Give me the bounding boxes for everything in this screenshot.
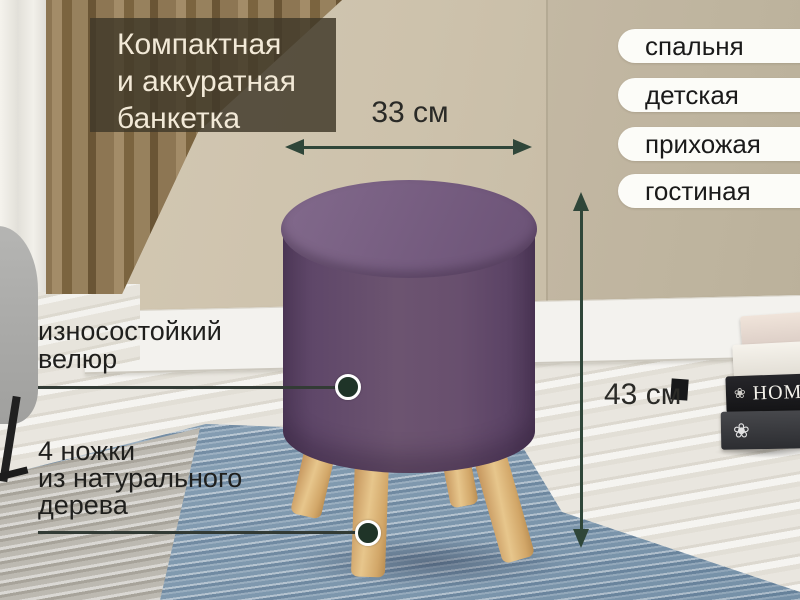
callout-legs-line-3: дерева [38,492,242,519]
callout-velour-text: износостойкий велюр [38,317,222,373]
room-tag-label: детская [645,80,739,111]
room-tag-label: спальня [645,31,744,62]
title-line-1: Компактная [117,26,336,63]
arrow-left-icon [285,139,304,155]
room-tag-livingroom: гостиная [618,174,800,208]
callout-velour-pointer-line [38,386,338,389]
pouf-leg-front-left [351,458,389,577]
width-dimension-line [302,146,514,149]
arrow-down-icon [573,529,589,548]
arrow-up-icon [573,192,589,211]
callout-legs-marker-icon [355,520,381,546]
callout-legs-pointer-line [38,531,358,534]
width-dimension-label: 33 см [288,96,532,130]
flower-icon: ❀ [733,418,750,443]
room-tag-bedroom: спальня [618,29,800,63]
pouf-top [281,180,537,278]
callout-velour-marker-icon [335,374,361,400]
book-home: ❀ HOME [725,374,800,414]
callout-legs-line-1: 4 ножки [38,438,242,465]
callout-velour-line-2: велюр [38,345,222,373]
callout-velour-line-1: износостойкий [38,317,222,345]
room-tag-label: гостиная [645,176,751,207]
room-tag-label: прихожая [645,129,761,160]
arrow-right-icon [513,139,532,155]
wall-corner-line [546,0,548,306]
book-floral: ❀ [721,410,800,450]
callout-legs-line-2: из натурального [38,465,242,492]
product-infographic: ❀ HOME ❀ Компактная и аккуратная банкетк… [0,0,800,600]
height-dimension-label: 43 см [604,378,714,412]
book-ornament-icon: ❀ [734,386,747,403]
room-tag-kids: детская [618,78,800,112]
book-white [732,341,800,378]
height-dimension-line [580,209,583,531]
room-tag-hallway: прихожая [618,127,800,161]
book-spine-text: HOME [752,380,800,405]
title-line-2: и аккуратная [117,63,336,100]
callout-legs-text: 4 ножки из натурального дерева [38,438,242,519]
